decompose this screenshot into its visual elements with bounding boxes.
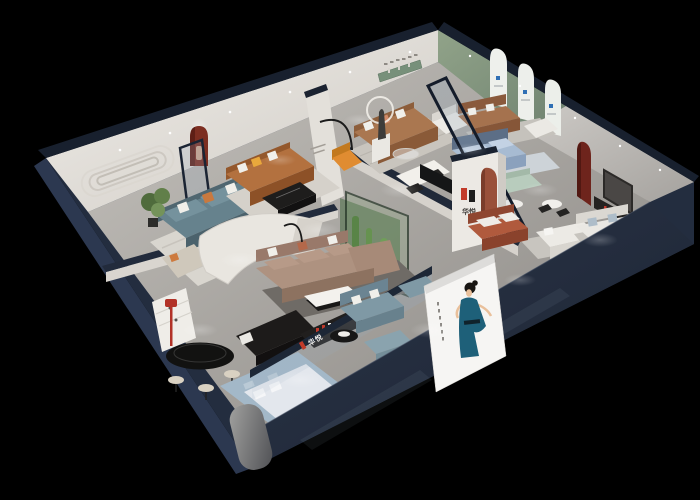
dining-oval-black-2: [166, 343, 234, 370]
showroom-render: 华悦: [0, 0, 700, 500]
face: [466, 289, 472, 297]
round-table-black: [330, 330, 358, 343]
isometric-scene: 华悦: [0, 0, 700, 500]
glass-coffee-table: [393, 149, 419, 160]
red-arch-niche-right: [577, 142, 591, 206]
